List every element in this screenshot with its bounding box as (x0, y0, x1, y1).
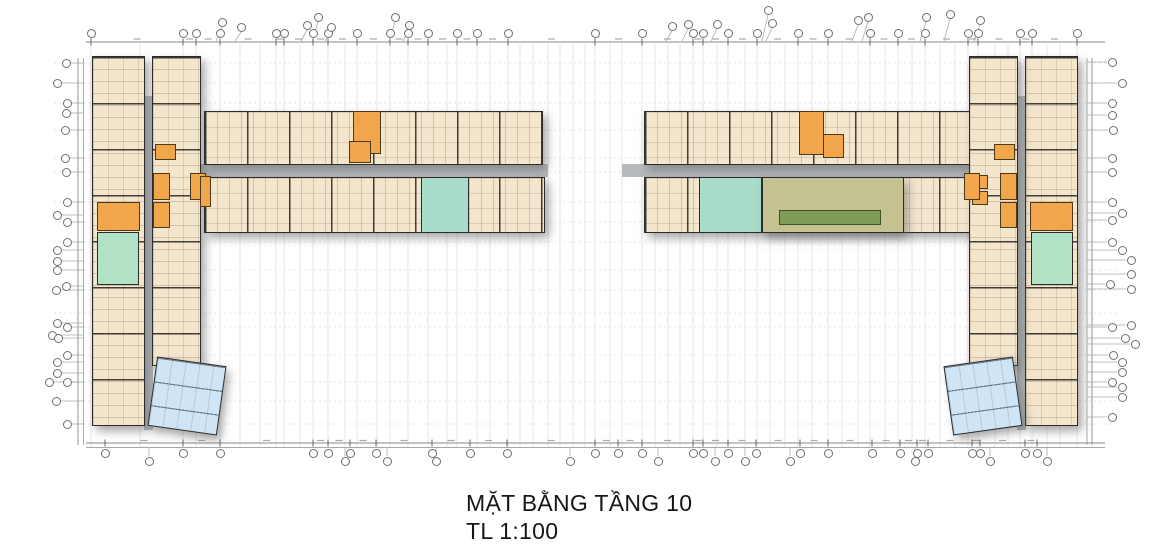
grid-bubble (179, 449, 188, 458)
grid-bubble (432, 457, 441, 466)
grid-bubble (824, 29, 833, 38)
grid-bubble (1073, 29, 1082, 38)
grid-bubble (453, 29, 462, 38)
grid-bubble (638, 449, 647, 458)
grid-bubble (52, 397, 61, 406)
grid-bubble (216, 29, 225, 38)
grid-bubble (638, 29, 647, 38)
north-wing-right-stair-core (799, 111, 824, 155)
grid-bubble (986, 457, 995, 466)
grid-bubble (1118, 358, 1127, 367)
grid-bubble (668, 22, 677, 31)
grid-bubble (473, 29, 482, 38)
grid-bubble (1118, 383, 1127, 392)
grid-bubble (1127, 285, 1136, 294)
grid-bubble (713, 20, 722, 29)
grid-bubble (1108, 216, 1117, 225)
grid-bubble (372, 449, 381, 458)
grid-bubble (101, 449, 110, 458)
grid-bubble (218, 18, 227, 27)
grid-bubble (1108, 198, 1117, 207)
grid-bubble (63, 198, 72, 207)
grid-bubble (53, 358, 62, 367)
grid-bubble (1033, 449, 1042, 458)
north-wing-right-corridor (622, 164, 1020, 177)
grid-bubble (796, 449, 805, 458)
north-wing-left-service-box (200, 176, 211, 207)
grid-bubble (1108, 168, 1117, 177)
grid-bubble (911, 457, 920, 466)
grid-bubble (53, 369, 62, 378)
grid-bubble (63, 378, 72, 387)
grid-bubble (711, 457, 720, 466)
grid-bubble (946, 10, 955, 19)
grid-bubble (45, 378, 54, 387)
grid-bubble (405, 21, 414, 30)
grid-bubble (504, 29, 513, 38)
grid-bubble (1108, 58, 1117, 67)
grid-bubble (854, 16, 863, 25)
grid-bubble (824, 449, 833, 458)
grid-bubble (309, 449, 318, 458)
north-wing-left-bottom-row (204, 177, 545, 233)
grid-bubble (383, 457, 392, 466)
grid-bubble (503, 449, 512, 458)
grid-bubble (63, 218, 72, 227)
grid-bubble (314, 13, 323, 22)
grid-bubble (63, 99, 72, 108)
grid-bubble (1108, 378, 1117, 387)
grid-bubble (753, 29, 762, 38)
north-wing-left-stair-landing (349, 141, 371, 163)
grid-bubble (614, 449, 623, 458)
grid-bubble (764, 6, 773, 15)
grid-bubble (1109, 351, 1118, 360)
grid-bubble (794, 29, 803, 38)
right-wing-stair-core (1030, 202, 1073, 231)
grid-bubble (1118, 79, 1127, 88)
grid-bubble (61, 126, 70, 135)
left-wing-blue-unit (147, 356, 226, 435)
grid-bubble (1108, 154, 1117, 163)
grid-bubble (309, 29, 318, 38)
grid-bubble (145, 457, 154, 466)
grid-bubble (353, 29, 362, 38)
floor-plan-canvas: MẶT BẰNG TẦNG 10 TL 1:100 (0, 0, 1170, 551)
grid-bubble (63, 323, 72, 332)
grid-bubble (976, 16, 985, 25)
grid-bubble (1108, 323, 1117, 332)
left-wing-green-unit (97, 232, 139, 285)
grid-bubble (404, 29, 413, 38)
grid-bubble (741, 457, 750, 466)
grid-bubble (1108, 99, 1117, 108)
north-wing-left-teal-unit (421, 177, 469, 233)
grid-bubble (1108, 413, 1117, 422)
plan-title: MẶT BẰNG TẦNG 10 (466, 489, 692, 517)
grid-bubble (61, 154, 70, 163)
right-wing-elevator-b (964, 173, 980, 200)
grid-bubble (424, 29, 433, 38)
grid-bubble (654, 457, 663, 466)
grid-bubble (1118, 209, 1127, 218)
grid-bubble (341, 457, 350, 466)
grid-bubble (192, 29, 201, 38)
grid-bubble (1021, 449, 1030, 458)
grid-bubble (63, 351, 72, 360)
grid-bubble (63, 420, 72, 429)
grid-bubble (327, 23, 336, 32)
right-wing-blue-unit (943, 356, 1022, 435)
left-wing-service-box (155, 144, 176, 160)
grid-bubble (1016, 29, 1025, 38)
grid-bubble (1118, 393, 1127, 402)
grid-bubble (53, 266, 62, 275)
right-wing-elevator-a (1000, 173, 1017, 200)
grid-bubble (54, 334, 63, 343)
grid-bubble (63, 238, 72, 247)
grid-bubble (1127, 256, 1136, 265)
grid-bubble (591, 449, 600, 458)
grid-bubble (1106, 280, 1115, 289)
grid-bubble (699, 29, 708, 38)
right-wing-green-unit (1031, 232, 1073, 285)
grid-bubble (324, 449, 333, 458)
grid-bubble (924, 449, 933, 458)
grid-bubble (976, 449, 985, 458)
left-wing-elevator-a (153, 173, 170, 200)
grid-bubble (62, 109, 71, 118)
grid-bubble (466, 449, 475, 458)
grid-bubble (1108, 238, 1117, 247)
grid-bubble (62, 59, 71, 68)
grid-bubble (179, 29, 188, 38)
grid-bubble (768, 19, 777, 28)
plan-scale: TL 1:100 (466, 517, 692, 545)
grid-bubble (964, 29, 973, 38)
grid-bubble (724, 449, 733, 458)
grid-bubble (699, 449, 708, 458)
grid-bubble (1127, 321, 1136, 330)
grid-bubble (724, 29, 733, 38)
grid-bubble (280, 29, 289, 38)
grid-bubble (303, 21, 312, 30)
grid-bubble (566, 457, 575, 466)
title-block: MẶT BẰNG TẦNG 10 TL 1:100 (466, 489, 692, 545)
grid-bubble (237, 23, 246, 32)
grid-bubble (87, 29, 96, 38)
grid-bubble (216, 449, 225, 458)
grid-bubble (62, 282, 71, 291)
grid-bubble (689, 449, 698, 458)
grid-bubble (786, 457, 795, 466)
grid-bubble (1121, 334, 1130, 343)
grid-bubble (974, 29, 983, 38)
grid-bubble (896, 449, 905, 458)
grid-bubble (52, 286, 61, 295)
grid-bubble (53, 319, 62, 328)
grid-bubble (53, 257, 62, 266)
grid-bubble (386, 29, 395, 38)
grid-bubble (1118, 246, 1127, 255)
right-wing-service-box (994, 144, 1015, 160)
grid-bubble (752, 449, 761, 458)
grid-bubble (62, 168, 71, 177)
grid-bubble (1109, 126, 1118, 135)
grid-bubble (1028, 29, 1037, 38)
right-wing-elevator-c (1000, 202, 1017, 228)
north-wing-right-teal-unit (699, 177, 762, 233)
grid-bubble (1131, 340, 1140, 349)
grid-bubble (868, 449, 877, 458)
grid-bubble (921, 29, 930, 38)
grid-bubble (864, 13, 873, 22)
grid-bubble (53, 211, 62, 220)
grid-bubble (391, 13, 400, 22)
grid-bubble (1043, 457, 1052, 466)
left-wing-stair-core (97, 202, 140, 231)
grid-bubble (1118, 368, 1127, 377)
grid-bubble (922, 13, 931, 22)
grid-bubble (689, 29, 698, 38)
grid-bubble (53, 79, 62, 88)
grid-bubble (1127, 270, 1136, 279)
grid-bubble (894, 29, 903, 38)
north-wing-right-olive-balcony (779, 210, 881, 225)
grid-bubble (684, 20, 693, 29)
grid-bubble (591, 29, 600, 38)
grid-bubble (53, 246, 62, 255)
left-wing-elevator-c (153, 202, 170, 228)
grid-bubble (1108, 111, 1117, 120)
north-wing-right-stair-landing (823, 134, 844, 158)
grid-bubble (866, 29, 875, 38)
grid-bubble (346, 449, 355, 458)
